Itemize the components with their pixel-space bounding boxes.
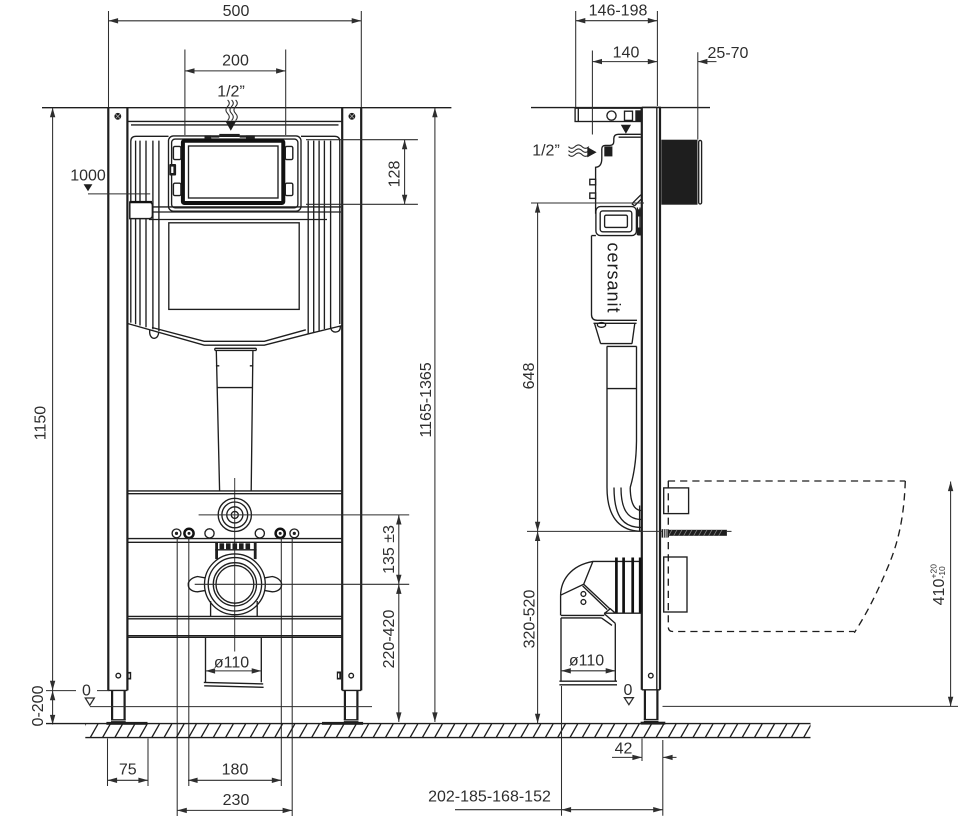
svg-text:42: 42 [615,740,633,757]
svg-text:648: 648 [521,363,538,390]
svg-text:0-200: 0-200 [30,685,47,726]
svg-text:320-520: 320-520 [521,590,538,649]
svg-text:146-198: 146-198 [589,3,648,20]
svg-text:410: 410 [931,579,948,606]
svg-text:cersanit: cersanit [604,243,624,314]
svg-text:-10: -10 [937,566,947,579]
svg-text:75: 75 [119,761,137,778]
svg-text:1/2”: 1/2” [217,84,245,101]
svg-text:ø110: ø110 [214,654,249,671]
svg-text:180: 180 [222,761,249,778]
svg-text:1/2”: 1/2” [532,143,560,160]
svg-text:1165-1365: 1165-1365 [418,362,435,437]
svg-text:1000: 1000 [70,168,106,185]
svg-text:ø110: ø110 [569,652,604,669]
svg-text:128: 128 [386,161,403,188]
svg-text:0: 0 [82,682,91,699]
svg-text:202-185-168-152: 202-185-168-152 [428,788,551,805]
svg-text:1150: 1150 [32,406,49,441]
svg-text:230: 230 [223,792,250,809]
svg-text:500: 500 [223,3,250,20]
svg-text:135 ±3: 135 ±3 [381,525,398,574]
svg-text:140: 140 [613,45,640,62]
svg-text:220-420: 220-420 [381,610,398,669]
svg-text:25-70: 25-70 [708,45,749,62]
svg-text:200: 200 [222,53,249,70]
svg-text:0: 0 [624,682,633,699]
